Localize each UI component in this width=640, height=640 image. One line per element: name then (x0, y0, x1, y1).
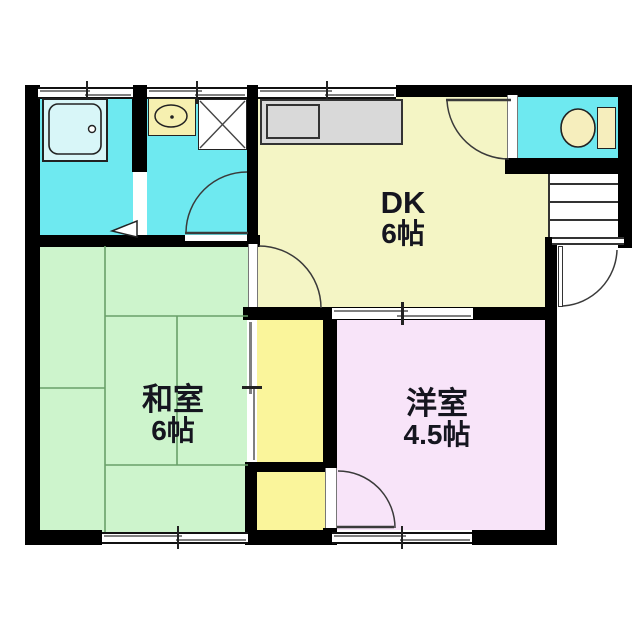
label-dk: DK 6帖 (333, 186, 473, 250)
washroom-door-arc (186, 172, 247, 232)
toilet-door-arc (447, 101, 509, 159)
washitsu-size: 6帖 (103, 416, 243, 446)
washitsu-name: 和室 (103, 383, 243, 416)
washbasin-drain (170, 115, 174, 119)
bathroom-door-triangle (112, 221, 137, 237)
youshitsu-name: 洋室 (367, 387, 507, 420)
dk-size: 6帖 (333, 219, 473, 249)
label-youshitsu: 洋室 4.5帖 (367, 387, 507, 451)
washing-machine-x (200, 101, 245, 148)
floor-plan: DK 6帖 和室 6帖 洋室 4.5帖 (0, 0, 640, 640)
plan-linework (0, 0, 640, 640)
youshitsu-size: 4.5帖 (367, 420, 507, 450)
toilet-bowl (561, 109, 595, 147)
entrance-door-arc (563, 250, 617, 306)
bathtub-drain (89, 126, 96, 133)
washitsu-dk-door-arc (259, 246, 321, 308)
closet-door-arc (338, 471, 395, 528)
dk-name: DK (333, 186, 473, 219)
label-washitsu: 和室 6帖 (103, 383, 243, 447)
